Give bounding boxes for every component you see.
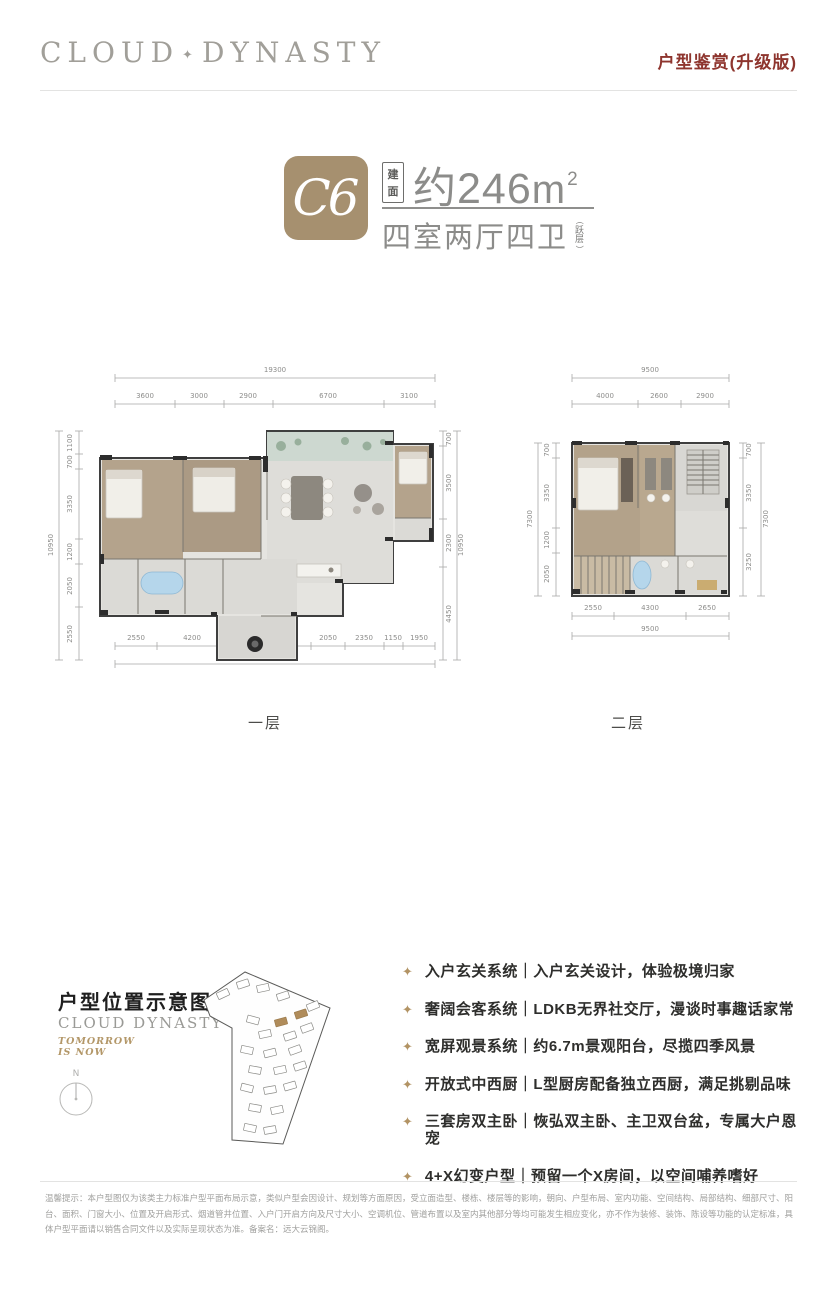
kitchen-island <box>297 564 341 577</box>
compass-icon: N <box>45 1063 107 1125</box>
svg-text:3350: 3350 <box>745 484 753 502</box>
svg-text:N: N <box>73 1069 80 1079</box>
plan1-dim-left-total: 10950 <box>47 431 63 660</box>
plan2-label: 二层 <box>528 712 728 733</box>
feature-item: ✦开放式中西厨｜L型厨房配备独立西厨，满足挑剔品味 <box>402 1076 812 1093</box>
rooms-row: 四室两厅四卫 ( 跃 层 ) <box>382 214 584 256</box>
plan1-dim-top-total: 19300 <box>115 366 435 382</box>
plan2-dim-top-segments: 4000 2600 2900 <box>572 392 729 408</box>
svg-text:2550: 2550 <box>66 625 74 643</box>
location-slogan: TOMORROW IS NOW <box>58 1036 135 1058</box>
plan2-dim-left-segments: 700 3350 1200 2050 <box>543 443 560 596</box>
svg-text:700: 700 <box>543 443 551 456</box>
basin <box>686 560 694 568</box>
plan2-dim-bottom-segments: 2550 4300 2650 <box>572 604 729 620</box>
feature-text: 开放式中西厨｜L型厨房配备独立西厨，满足挑剔品味 <box>425 1076 791 1093</box>
svg-text:10950: 10950 <box>47 534 55 556</box>
svg-text:7300: 7300 <box>762 510 770 528</box>
svg-text:3250: 3250 <box>745 553 753 571</box>
svg-text:2300: 2300 <box>445 534 453 552</box>
svg-text:700: 700 <box>445 432 453 445</box>
area-label-char: 面 <box>388 183 399 199</box>
bed-1 <box>106 470 142 518</box>
svg-text:3350: 3350 <box>66 495 74 513</box>
feature-text: 入户玄关系统｜入户玄关设计，体验极境归家 <box>425 963 735 980</box>
plan2-drawing <box>572 441 729 596</box>
svg-text:2550: 2550 <box>127 634 145 642</box>
svg-text:700: 700 <box>66 455 74 468</box>
svg-text:2050: 2050 <box>543 565 551 583</box>
svg-text:1950: 1950 <box>410 634 428 642</box>
bath-accent-mat <box>697 580 717 590</box>
features-list: ✦入户玄关系统｜入户玄关设计，体验极境归家 ✦奢阔会客系统｜LDKB无界社交厅，… <box>402 963 812 1185</box>
area-label-box: 建 面 <box>382 162 404 203</box>
svg-text:2900: 2900 <box>696 392 714 400</box>
rooms-text: 四室两厅四卫 <box>382 214 568 256</box>
feature-item: ✦宽屏观景系统｜约6.7m景观阳台，尽揽四季风景 <box>402 1038 812 1055</box>
footer-divider <box>40 1181 797 1182</box>
feature-text: 奢阔会客系统｜LDKB无界社交厅，漫谈时事趣话家常 <box>425 1001 794 1018</box>
siteplan-map <box>195 958 355 1158</box>
jump-char: 层 <box>575 235 584 244</box>
wardrobe <box>621 458 633 502</box>
plan1-dim-right-total: 10950 <box>453 431 465 660</box>
basin <box>661 560 669 568</box>
plan2-dim-right-segments: 700 3350 3250 <box>739 443 753 596</box>
staircase <box>687 450 719 494</box>
svg-text:6700: 6700 <box>319 392 337 400</box>
star-bullet-icon: ✦ <box>402 1038 413 1055</box>
bed-2 <box>193 468 235 512</box>
svg-text:2350: 2350 <box>355 634 373 642</box>
plan2-dim-top-total: 9500 <box>572 366 729 382</box>
svg-text:700: 700 <box>745 443 753 456</box>
feature-item: ✦入户玄关系统｜入户玄关设计，体验极境归家 <box>402 963 812 980</box>
svg-text:1200: 1200 <box>66 543 74 561</box>
svg-text:4450: 4450 <box>445 605 453 623</box>
svg-text:2050: 2050 <box>319 634 337 642</box>
flyer-page: CLOUD✦DYNASTY 户型鉴赏(升级版) C6 建 面 约246m2 四室… <box>0 0 837 1300</box>
bed-3 <box>399 452 427 484</box>
svg-text:1100: 1100 <box>66 434 74 452</box>
feature-text: 宽屏观景系统｜约6.7m景观阳台，尽揽四季风景 <box>425 1038 756 1055</box>
plan1-dim-right-segments: 700 3500 2300 4450 <box>439 431 453 660</box>
star-bullet-icon: ✦ <box>402 1001 413 1018</box>
master-bed <box>578 458 618 510</box>
svg-text:2550: 2550 <box>584 604 602 612</box>
plan1-dim-top-segments: 3600 3000 2900 6700 3100 <box>115 392 435 408</box>
plan2-dim-bottom-total: 9500 <box>572 625 729 640</box>
bathtub <box>141 572 183 594</box>
dining-table <box>281 476 333 520</box>
svg-text:1150: 1150 <box>384 634 402 642</box>
star-diamond-icon: ✦ <box>182 48 199 63</box>
bath-corridor-floor <box>102 559 297 614</box>
svg-text:3100: 3100 <box>400 392 418 400</box>
svg-text:2050: 2050 <box>66 577 74 595</box>
floorplan-level2: 9500 4000 2600 2900 7300 700 3350 1200 2… <box>525 358 825 673</box>
plan2-dim-left-total: 7300 <box>526 443 542 596</box>
svg-text:19300: 19300 <box>264 366 286 374</box>
svg-text:3600: 3600 <box>136 392 154 400</box>
feature-item: ✦奢阔会客系统｜LDKB无界社交厅，漫谈时事趣话家常 <box>402 1001 812 1018</box>
area-value: 约246m2 <box>413 158 579 212</box>
feature-item: ✦三套房双主卧｜恢弘双主卧、主卫双台盆，专属大户恩宠 <box>402 1113 812 1147</box>
paren-open: ( <box>577 222 583 225</box>
corridor-floor <box>675 511 727 556</box>
area-row: 建 面 约246m2 <box>382 158 579 212</box>
area-label-char: 建 <box>388 166 399 182</box>
svg-text:4000: 4000 <box>596 392 614 400</box>
svg-text:3000: 3000 <box>190 392 208 400</box>
washer <box>247 636 263 652</box>
header-divider <box>40 90 797 91</box>
svg-text:2650: 2650 <box>698 604 716 612</box>
svg-text:9500: 9500 <box>641 625 659 633</box>
svg-text:9500: 9500 <box>641 366 659 374</box>
paren-close: ) <box>577 246 583 249</box>
svg-text:3350: 3350 <box>543 484 551 502</box>
svg-text:7300: 7300 <box>526 510 534 528</box>
plan2-dim-right-total: 7300 <box>757 443 770 596</box>
brand-logo: CLOUD✦DYNASTY <box>40 36 386 69</box>
star-bullet-icon: ✦ <box>402 1113 413 1130</box>
badge-divider <box>382 207 594 209</box>
star-bullet-icon: ✦ <box>402 963 413 980</box>
plan1-dim-left-segments: 1100 700 3350 1200 2050 2550 <box>66 431 83 660</box>
svg-text:1200: 1200 <box>543 531 551 549</box>
svg-text:2600: 2600 <box>650 392 668 400</box>
bath-right-floor <box>395 518 431 540</box>
plan1-label: 一层 <box>165 712 365 733</box>
disclaimer-text: 温馨提示：本户型图仅为该类主力标准户型平面布局示意，类似户型会因设计、规划等方面… <box>45 1191 793 1238</box>
feature-text: 三套房双主卧｜恢弘双主卧、主卫双台盆，专属大户恩宠 <box>425 1113 812 1147</box>
star-bullet-icon: ✦ <box>402 1076 413 1093</box>
svg-text:3500: 3500 <box>445 474 453 492</box>
unit-badge: C6 <box>284 156 368 240</box>
logo-word-left: CLOUD <box>40 36 179 69</box>
page-tagline: 户型鉴赏(升级版) <box>658 48 797 73</box>
svg-text:2900: 2900 <box>239 392 257 400</box>
bathtub-2 <box>633 561 651 589</box>
svg-text:4300: 4300 <box>641 604 659 612</box>
plan1-drawing <box>100 431 433 660</box>
svg-text:10950: 10950 <box>457 534 465 556</box>
jump-level-tag: ( 跃 层 ) <box>575 220 584 250</box>
floorplan-level1: 19300 3600 3000 2900 6700 3100 10950 110… <box>45 358 465 673</box>
logo-word-right: DYNASTY <box>202 36 386 69</box>
svg-text:4200: 4200 <box>183 634 201 642</box>
